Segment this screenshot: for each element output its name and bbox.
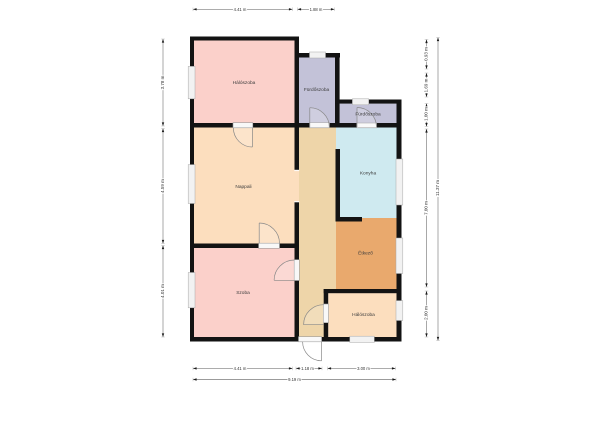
svg-text:Szoba: Szoba [236,290,250,296]
svg-text:4.59 m: 4.59 m [160,179,165,193]
svg-text:2.00 m: 2.00 m [424,306,429,320]
svg-text:9.19 m: 9.19 m [288,377,301,382]
svg-text:3.00 m: 3.00 m [357,366,370,371]
svg-text:Hálószoba: Hálószoba [352,312,375,318]
svg-text:4.01 m: 4.01 m [160,284,165,298]
svg-text:3.78 m: 3.78 m [160,75,165,89]
svg-text:1.18 m: 1.18 m [301,366,314,371]
svg-text:1.00 m: 1.00 m [424,107,429,121]
svg-text:Nappali: Nappali [235,184,251,190]
svg-text:4.41 m: 4.41 m [234,7,247,12]
svg-text:7.00 m: 7.00 m [424,201,429,215]
svg-text:0.93 m: 0.93 m [424,47,429,61]
svg-text:Fürdőszoba: Fürdőszoba [355,111,381,117]
svg-text:4.41 m: 4.41 m [234,366,247,371]
svg-text:Fürdőszoba: Fürdőszoba [304,87,330,93]
svg-text:1.88 m: 1.88 m [310,7,323,12]
svg-text:Étkező: Étkező [358,249,373,256]
svg-text:11.37 m: 11.37 m [435,180,440,196]
svg-text:1.69 m: 1.69 m [424,78,429,92]
svg-text:Konyha: Konyha [360,170,377,176]
svg-text:Hálószoba: Hálószoba [233,80,256,86]
